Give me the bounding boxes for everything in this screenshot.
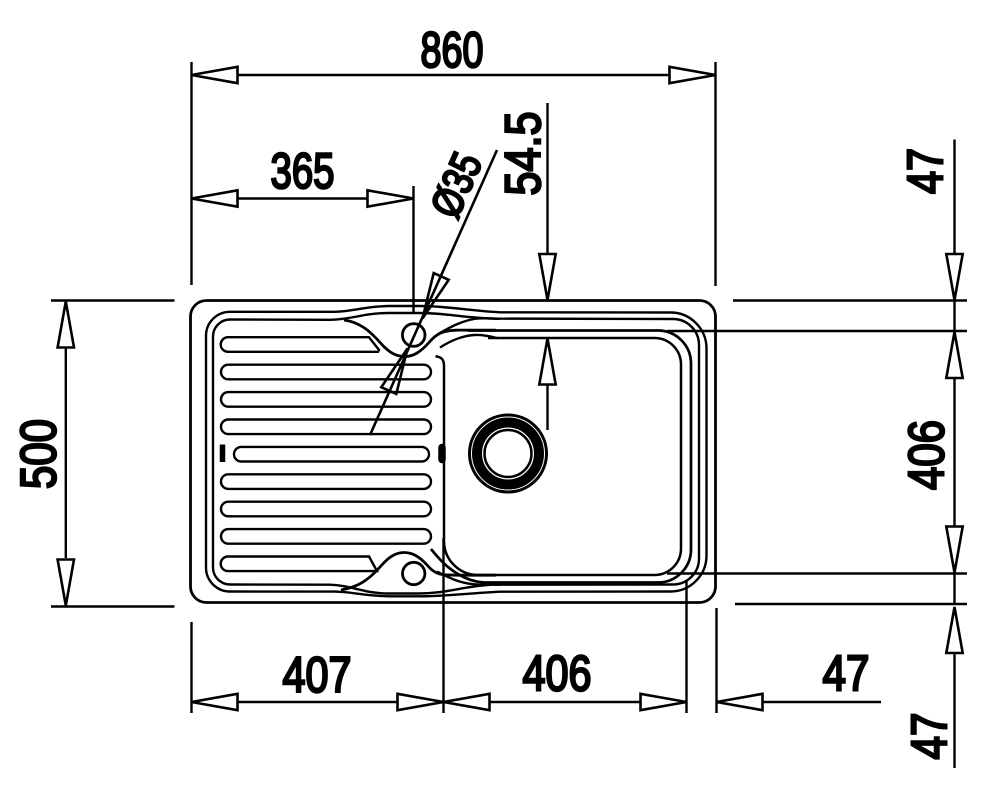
- svg-text:47: 47: [898, 148, 954, 194]
- svg-text:365: 365: [271, 143, 335, 199]
- svg-text:Ø35: Ø35: [422, 146, 492, 225]
- svg-text:500: 500: [11, 419, 67, 489]
- svg-text:47: 47: [823, 646, 870, 702]
- svg-text:860: 860: [421, 22, 484, 78]
- svg-text:47: 47: [902, 713, 958, 760]
- svg-text:54.5: 54.5: [495, 112, 551, 196]
- svg-text:406: 406: [899, 420, 955, 490]
- svg-text:406: 406: [523, 646, 592, 702]
- svg-text:407: 407: [283, 647, 352, 703]
